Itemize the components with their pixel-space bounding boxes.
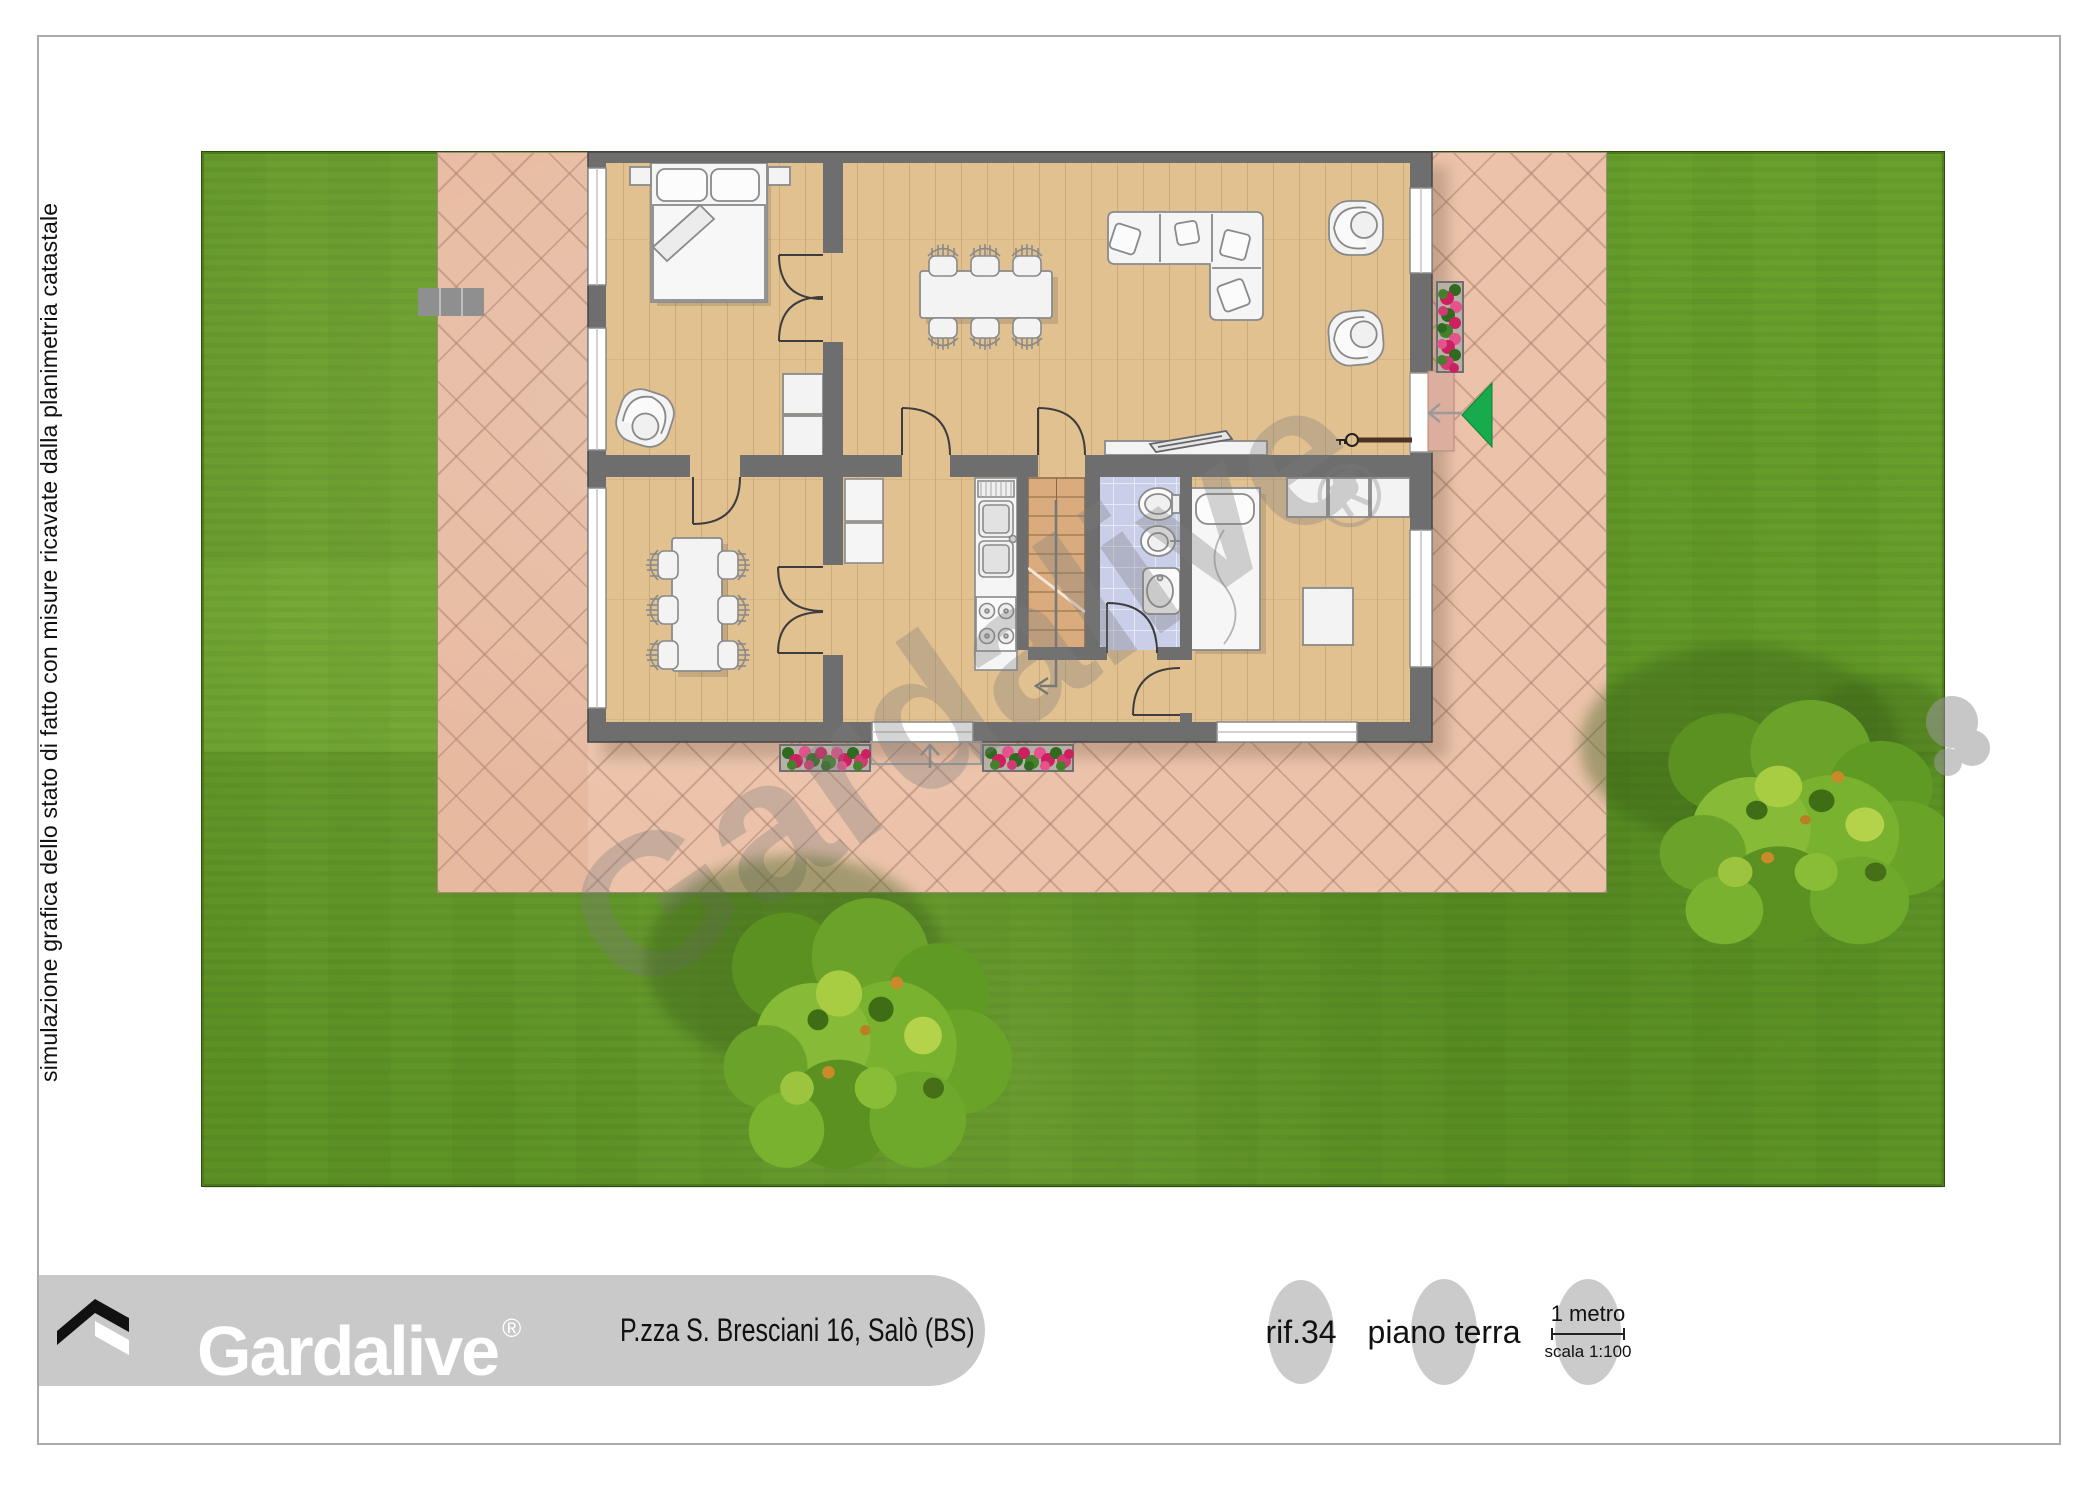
- window-icon: [588, 168, 606, 285]
- dining-table-icon: [920, 271, 1052, 318]
- reference-badge: rif.34: [1268, 1280, 1334, 1384]
- brand-logo: Gardalive®: [197, 1275, 519, 1386]
- cabinet-icon: [845, 523, 883, 563]
- cabinet-icon: [783, 416, 823, 456]
- tree-icon: [724, 898, 1013, 1169]
- tree-overflow-silhouette: [1926, 696, 1990, 776]
- dining-room-furniture: [646, 538, 750, 677]
- property-address: P.zza S. Bresciani 16, Salò (BS): [620, 1275, 975, 1386]
- scale-ratio: scala 1:100: [1545, 1342, 1632, 1362]
- window-icon: [1410, 530, 1432, 667]
- garden-steps-icon: [418, 288, 484, 316]
- nightstand-icon: [768, 167, 790, 185]
- window-icon: [588, 328, 606, 450]
- window-icon: [588, 488, 606, 708]
- page: Gardalive ® Gardalive® P.zza S. Brescian…: [0, 0, 2100, 1485]
- floor-plan: Gardalive ®: [0, 0, 2100, 1485]
- nightstand-icon: [630, 167, 651, 185]
- floor-label: piano terra: [1368, 1314, 1521, 1351]
- cabinet-icon: [783, 374, 823, 414]
- armchair-icon: [1327, 309, 1386, 368]
- scale-bar-label: 1 metro: [1551, 1302, 1626, 1326]
- window-icon: [1410, 188, 1432, 273]
- patio-shade: [437, 152, 588, 893]
- disclaimer-note: simulazione grafica dello stato di fatto…: [36, 142, 63, 1082]
- entrance-arrow-icon: [1462, 383, 1492, 447]
- double-bed-icon: [651, 163, 767, 302]
- flower-planter-icon: [1437, 282, 1463, 373]
- table-icon: [672, 538, 722, 671]
- french-window-icon: [1217, 722, 1357, 742]
- scale-bar: [1551, 1328, 1625, 1340]
- scale-badge: 1 metro scala 1:100: [1555, 1279, 1621, 1385]
- armchair-icon: [1329, 201, 1383, 255]
- floor-badge: piano terra: [1411, 1279, 1477, 1385]
- brand-name: Gardalive: [197, 1312, 498, 1390]
- dish-rack-icon: [978, 481, 1014, 497]
- gardalive-roof-icon: [57, 1297, 167, 1363]
- ottoman-icon: [1303, 588, 1353, 645]
- registered-mark-icon: ®: [502, 1313, 519, 1343]
- fridge-icon: [845, 479, 883, 521]
- reference-number: rif.34: [1265, 1314, 1336, 1351]
